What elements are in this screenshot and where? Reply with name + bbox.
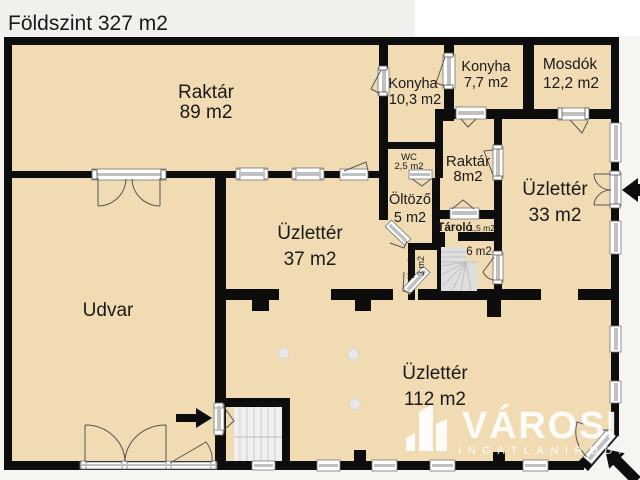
svg-text:Földszint 327 m2: Földszint 327 m2 (8, 12, 168, 35)
svg-text:Tároló: Tároló (437, 222, 472, 234)
svg-text:10,3 m2: 10,3 m2 (389, 92, 441, 108)
svg-text:Üzlettér: Üzlettér (402, 363, 468, 384)
svg-text:7,7 m2: 7,7 m2 (464, 75, 508, 91)
svg-text:8m2: 8m2 (453, 168, 482, 185)
svg-text:6 m2: 6 m2 (466, 246, 492, 258)
svg-text:Kazán: Kazán (406, 253, 416, 279)
svg-text:2,5 m2: 2,5 m2 (394, 161, 423, 172)
svg-text:3 m2: 3 m2 (416, 256, 426, 276)
svg-text:1,5 m2: 1,5 m2 (469, 223, 495, 233)
svg-text:12,2 m2: 12,2 m2 (543, 75, 599, 92)
svg-text:Üzlettér: Üzlettér (277, 223, 343, 244)
svg-text:Raktár: Raktár (178, 82, 235, 103)
svg-text:5 m2: 5 m2 (394, 210, 426, 226)
svg-text:Üzlettér: Üzlettér (522, 179, 588, 200)
svg-text:Konyha: Konyha (388, 76, 438, 92)
svg-text:33 m2: 33 m2 (529, 205, 582, 226)
svg-text:37 m2: 37 m2 (284, 249, 337, 270)
svg-text:VÁROSI: VÁROSI (462, 403, 619, 447)
svg-text:Mosdók: Mosdók (543, 56, 598, 73)
svg-text:Konyha: Konyha (461, 59, 511, 75)
svg-text:INGATLANIRODA: INGATLANIRODA (458, 445, 633, 457)
svg-text:Öltöző: Öltöző (389, 190, 431, 208)
svg-text:Udvar: Udvar (83, 300, 134, 321)
svg-text:89 m2: 89 m2 (180, 102, 233, 123)
svg-text:112 m2: 112 m2 (404, 389, 466, 410)
